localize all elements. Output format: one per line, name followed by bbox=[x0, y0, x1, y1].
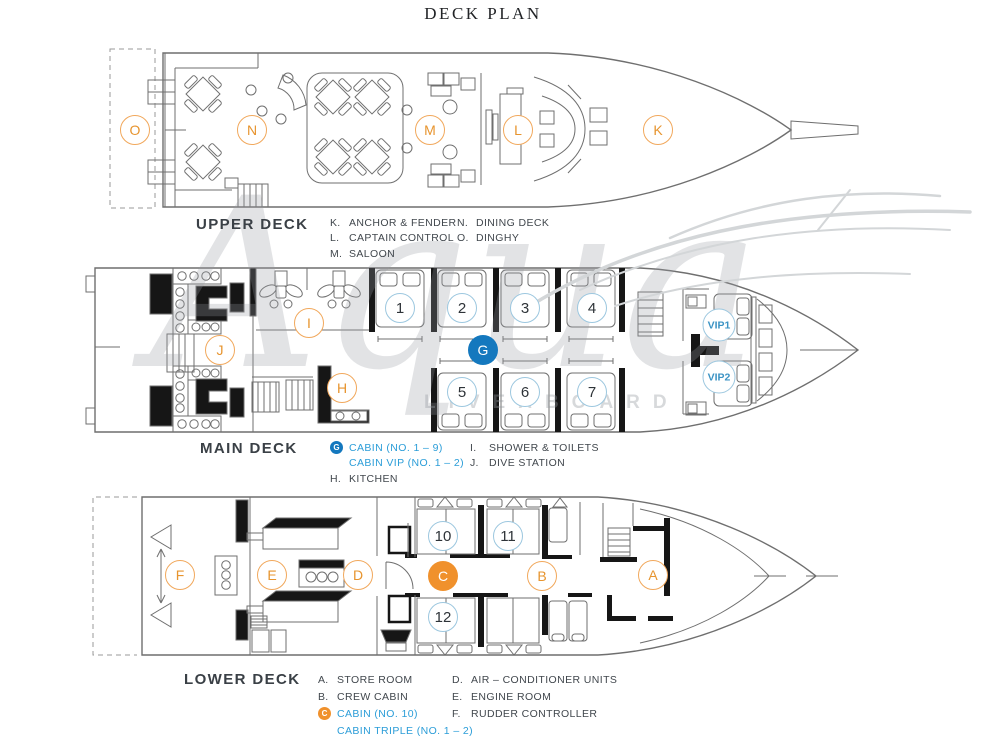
legend-text: DIVE STATION bbox=[489, 457, 565, 469]
upper-deck-legend: K.ANCHOR & FENDERL.CAPTAIN CONTROLM.SALO… bbox=[330, 215, 584, 262]
legend-text: DINGHY bbox=[476, 232, 519, 244]
marker-main-3: 3 bbox=[510, 293, 540, 323]
main-deck-legend: GCABIN (NO. 1 – 9)CABIN VIP (NO. 1 – 2)H… bbox=[330, 440, 610, 487]
legend-text: AIR – CONDITIONER UNITS bbox=[471, 674, 617, 686]
legend-key: O. bbox=[457, 232, 476, 244]
legend-item: F.RUDDER CONTROLLER bbox=[452, 705, 586, 722]
main-deck-label: MAIN DECK bbox=[200, 440, 298, 457]
legend-key: J. bbox=[470, 457, 489, 469]
legend-item: M.SALOON bbox=[330, 246, 457, 262]
marker-main-5: 5 bbox=[447, 377, 477, 407]
marker-upper-m: M bbox=[415, 115, 445, 145]
legend-text: CAPTAIN CONTROL bbox=[349, 232, 454, 244]
upper-deck-label: UPPER DECK bbox=[196, 216, 308, 233]
marker-upper-n: N bbox=[237, 115, 267, 145]
legend-key: I. bbox=[470, 442, 489, 454]
legend-key: N. bbox=[457, 217, 476, 229]
legend-key: H. bbox=[330, 473, 349, 485]
legend-text: CABIN (NO. 10) bbox=[337, 708, 418, 720]
legend-item: CABIN VIP (NO. 1 – 2) bbox=[330, 456, 470, 472]
marker-main-j: J bbox=[205, 335, 235, 365]
legend-icon-c: C bbox=[318, 707, 331, 720]
legend-text: ENGINE ROOM bbox=[471, 691, 551, 703]
marker-main-7: 7 bbox=[577, 377, 607, 407]
legend-item: D.AIR – CONDITIONER UNITS bbox=[452, 671, 586, 688]
legend-text: CABIN VIP (NO. 1 – 2) bbox=[349, 457, 464, 469]
legend-text: CREW CABIN bbox=[337, 691, 408, 703]
legend-key: K. bbox=[330, 217, 349, 229]
marker-main-i: I bbox=[294, 308, 324, 338]
marker-lower-c: C bbox=[428, 561, 458, 591]
lower-deck-label: LOWER DECK bbox=[184, 671, 301, 688]
lower-deck-legend: A.STORE ROOMB.CREW CABINCCABIN (NO. 10)C… bbox=[318, 671, 586, 739]
legend-icon-g: G bbox=[330, 441, 343, 454]
marker-upper-l: L bbox=[503, 115, 533, 145]
legend-item: H.KITCHEN bbox=[330, 471, 470, 487]
marker-main-4: 4 bbox=[577, 293, 607, 323]
marker-upper-k: K bbox=[643, 115, 673, 145]
marker-lower-12: 12 bbox=[428, 602, 458, 632]
legend-item: GCABIN (NO. 1 – 9) bbox=[330, 440, 470, 456]
legend-item: CABIN TRIPLE (NO. 1 – 2) bbox=[318, 722, 452, 739]
marker-main-6: 6 bbox=[510, 377, 540, 407]
legend-key: L. bbox=[330, 232, 349, 244]
legend-text: KITCHEN bbox=[349, 473, 398, 485]
legend-text: SHOWER & TOILETS bbox=[489, 442, 599, 454]
legend-text: STORE ROOM bbox=[337, 674, 413, 686]
legend-key: F. bbox=[452, 708, 471, 720]
legend-item: J.DIVE STATION bbox=[470, 456, 610, 472]
legend-key: A. bbox=[318, 674, 337, 686]
marker-lower-f: F bbox=[165, 560, 195, 590]
legend-item: CCABIN (NO. 10) bbox=[318, 705, 452, 722]
marker-lower-b: B bbox=[527, 561, 557, 591]
marker-lower-a: A bbox=[638, 560, 668, 590]
legend-item: O.DINGHY bbox=[457, 231, 584, 247]
marker-lower-11: 11 bbox=[493, 521, 523, 551]
marker-main-vip1: VIP1 bbox=[703, 309, 736, 342]
legend-key: E. bbox=[452, 691, 471, 703]
legend-key: D. bbox=[452, 674, 471, 686]
legend-item: L.CAPTAIN CONTROL bbox=[330, 231, 457, 247]
marker-lower-d: D bbox=[343, 560, 373, 590]
legend-item: E.ENGINE ROOM bbox=[452, 688, 586, 705]
legend-text: SALOON bbox=[349, 248, 395, 260]
marker-lower-10: 10 bbox=[428, 521, 458, 551]
marker-main-g: G bbox=[468, 335, 498, 365]
legend-item: K.ANCHOR & FENDER bbox=[330, 215, 457, 231]
legend-text: DINING DECK bbox=[476, 217, 549, 229]
legend-text: CABIN (NO. 1 – 9) bbox=[349, 442, 443, 454]
legend-key: B. bbox=[318, 691, 337, 703]
marker-main-h: H bbox=[327, 373, 357, 403]
legend-item: N.DINING DECK bbox=[457, 215, 584, 231]
marker-upper-o: O bbox=[120, 115, 150, 145]
legend-key: M. bbox=[330, 248, 349, 260]
legend-item: A.STORE ROOM bbox=[318, 671, 452, 688]
legend-item: B.CREW CABIN bbox=[318, 688, 452, 705]
deck-plan-page: DECK PLAN bbox=[0, 0, 1000, 750]
marker-main-1: 1 bbox=[385, 293, 415, 323]
marker-layer: ONMLKJIHG1234567VIP1VIP2FEDCBA101112 bbox=[0, 0, 1000, 750]
marker-main-vip2: VIP2 bbox=[703, 361, 736, 394]
legend-text: ANCHOR & FENDER bbox=[349, 217, 457, 229]
marker-main-2: 2 bbox=[447, 293, 477, 323]
marker-lower-e: E bbox=[257, 560, 287, 590]
legend-item: I.SHOWER & TOILETS bbox=[470, 440, 610, 456]
legend-text: RUDDER CONTROLLER bbox=[471, 708, 597, 720]
